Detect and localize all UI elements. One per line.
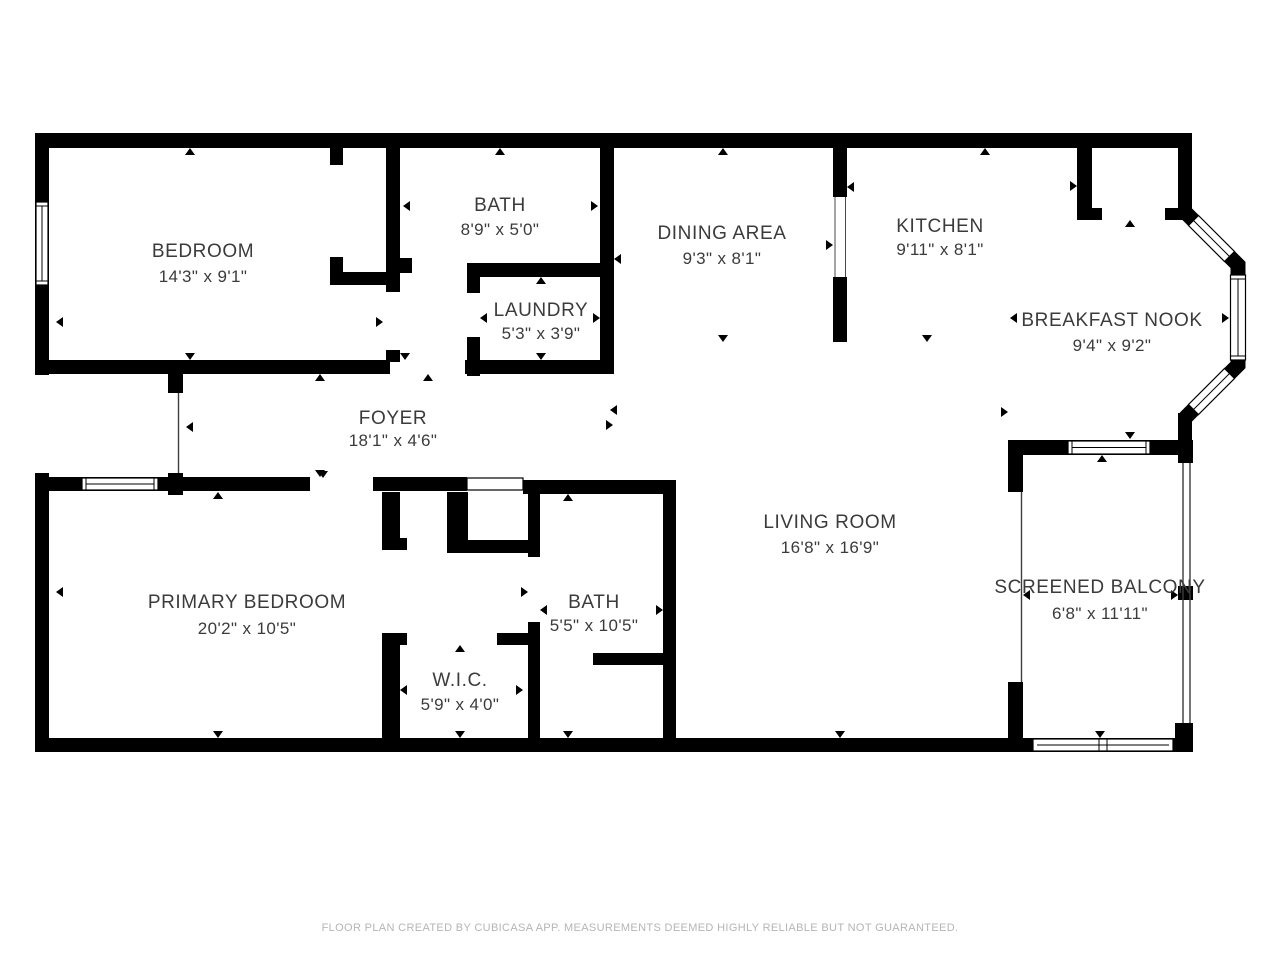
room-name: BEDROOM: [152, 241, 254, 262]
room-name: LAUNDRY: [494, 300, 589, 321]
room-name: PRIMARY BEDROOM: [148, 592, 346, 613]
room-label-dining-area: DINING AREA 9'3" x 8'1": [657, 223, 786, 268]
room-label-bath-lower: BATH 5'5" x 10'5": [550, 592, 639, 635]
room-label-bath-upper: BATH 8'9" x 5'0": [461, 195, 540, 239]
room-dims: 20'2" x 10'5": [198, 619, 296, 638]
footer-disclaimer: FLOOR PLAN CREATED BY CUBICASA APP. MEAS…: [322, 922, 959, 934]
room-name: FOYER: [359, 408, 427, 429]
room-label-screened-balcony: SCREENED BALCONY 6'8" x 11'11": [994, 577, 1205, 623]
room-dims: 6'8" x 11'11": [1052, 604, 1148, 623]
room-name: BREAKFAST NOOK: [1021, 310, 1202, 331]
room-name: DINING AREA: [657, 223, 786, 244]
room-label-bedroom: BEDROOM 14'3" x 9'1": [152, 241, 254, 286]
room-dims: 18'1" x 4'6": [349, 431, 438, 450]
floor-plan-page: BEDROOM 14'3" x 9'1" BATH 8'9" x 5'0" LA…: [0, 0, 1280, 960]
room-dims: 9'4" x 9'2": [1073, 336, 1152, 355]
room-dims: 8'9" x 5'0": [461, 220, 540, 239]
floor-plan-canvas: BEDROOM 14'3" x 9'1" BATH 8'9" x 5'0" LA…: [0, 0, 1280, 960]
room-label-kitchen: KITCHEN 9'11" x 8'1": [896, 216, 984, 259]
room-dims: 5'9" x 4'0": [421, 695, 500, 714]
room-dims: 14'3" x 9'1": [159, 267, 248, 286]
room-dims: 16'8" x 16'9": [781, 538, 879, 557]
room-name: KITCHEN: [896, 216, 984, 237]
room-dims: 5'3" x 3'9": [502, 324, 581, 343]
room-name: LIVING ROOM: [763, 512, 896, 533]
room-label-laundry: LAUNDRY 5'3" x 3'9": [494, 300, 589, 343]
room-label-wic: W.I.C. 5'9" x 4'0": [421, 670, 500, 714]
room-label-breakfast-nook: BREAKFAST NOOK 9'4" x 9'2": [1021, 310, 1202, 355]
room-label-primary-bedroom: PRIMARY BEDROOM 20'2" x 10'5": [148, 592, 346, 638]
room-name: BATH: [474, 195, 526, 216]
room-dims: 9'3" x 8'1": [683, 249, 762, 268]
room-name: SCREENED BALCONY: [994, 577, 1205, 598]
room-dims: 5'5" x 10'5": [550, 616, 639, 635]
room-dims: 9'11" x 8'1": [896, 240, 983, 259]
room-label-living-room: LIVING ROOM 16'8" x 16'9": [763, 512, 896, 557]
room-name: BATH: [568, 592, 620, 613]
room-label-foyer: FOYER 18'1" x 4'6": [349, 408, 438, 450]
room-name: W.I.C.: [432, 670, 487, 691]
